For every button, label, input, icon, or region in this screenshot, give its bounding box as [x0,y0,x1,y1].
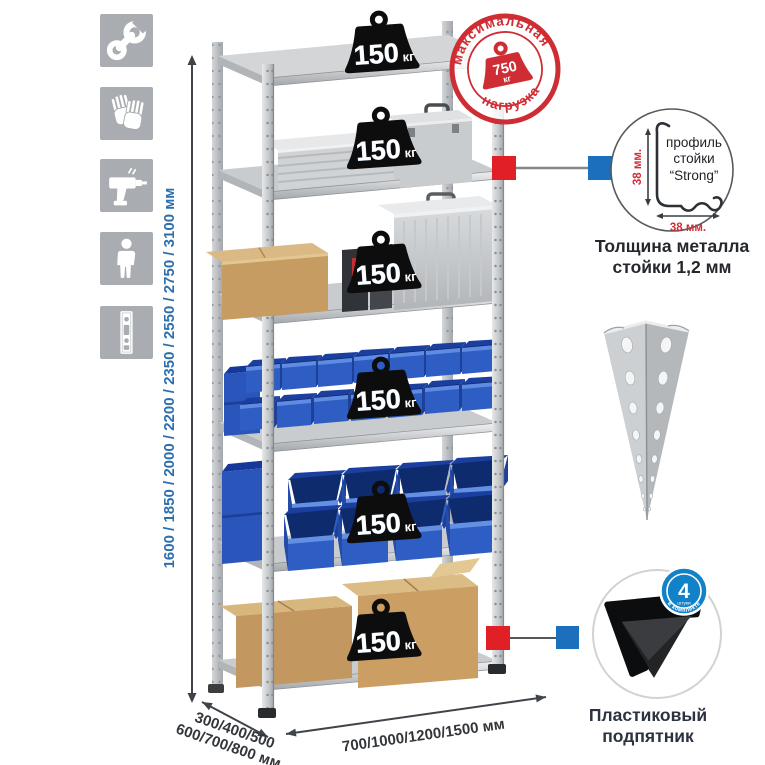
shelf-load-value: 150 [355,508,402,541]
profile-caption-1: Толщина металла [595,236,750,256]
plastic-foot-detail: 4 штуки в комплекте Пластиковый подпятни… [589,568,721,747]
cardboard-box-shelf3 [206,243,328,320]
blue-marker-square [556,626,579,649]
profile-horizontal-dim-label: 38 мм. [670,222,706,234]
included-count-badge: 4 штуки в комплекте [661,568,708,615]
angle-post-image [604,322,689,520]
shelf-load-unit: кг [404,519,418,535]
badge-count: 4 [678,580,690,603]
profile-label-1: профиль [666,135,722,150]
main-illustration: 1600 / 1850 / 2000 / 2200 / 2350 / 2550 … [0,0,765,765]
shelf-load-unit: кг [404,145,418,161]
shelf-load-unit: кг [404,269,418,285]
shelf-load-value: 150 [353,38,400,71]
badge-unit: штуки [677,602,691,607]
shelf-load-unit: кг [404,395,418,411]
width-dimension-label: 700/1000/1200/1500 мм [341,716,506,756]
red-marker-square [486,626,510,650]
shelf-load-unit: кг [404,637,418,653]
shelf-load-value: 150 [355,258,402,291]
foot-callout-connector [486,626,579,650]
shelf-load-value: 150 [355,626,402,659]
shelf-load-badge-1: 150 кг [341,10,420,73]
profile-vertical-dim-label: 38 мм. [632,149,644,185]
profile-label-3: “Strong” [670,168,719,183]
profile-caption-2: стойки 1,2 мм [613,257,732,277]
shelf-load-value: 150 [355,384,402,417]
shelf-load-value: 150 [355,134,402,167]
blue-marker-square [588,156,612,180]
height-dimension: 1600 / 1850 / 2000 / 2200 / 2350 / 2550 … [161,55,197,703]
height-dimension-label: 1600 / 1850 / 2000 / 2200 / 2350 / 2550 … [161,188,178,569]
profile-callout-connector [492,156,612,180]
product-infographic: 1600 / 1850 / 2000 / 2200 / 2350 / 2550 … [0,0,765,765]
cardboard-boxes-bottom [220,558,480,688]
width-dimension: 700/1000/1200/1500 мм [285,693,546,755]
foot-caption-2: подпятник [602,726,694,746]
shelving-rack: 150 кг 150 кг 150 кг 150 кг 150 кг [206,10,508,718]
shelf-load-unit: кг [402,49,416,65]
profile-label-2: стойки [673,151,714,166]
red-marker-square [492,156,516,180]
profile-detail: 38 мм. 38 мм. профиль стойки “Strong” То… [595,109,750,277]
foot-caption-1: Пластиковый [589,705,707,725]
